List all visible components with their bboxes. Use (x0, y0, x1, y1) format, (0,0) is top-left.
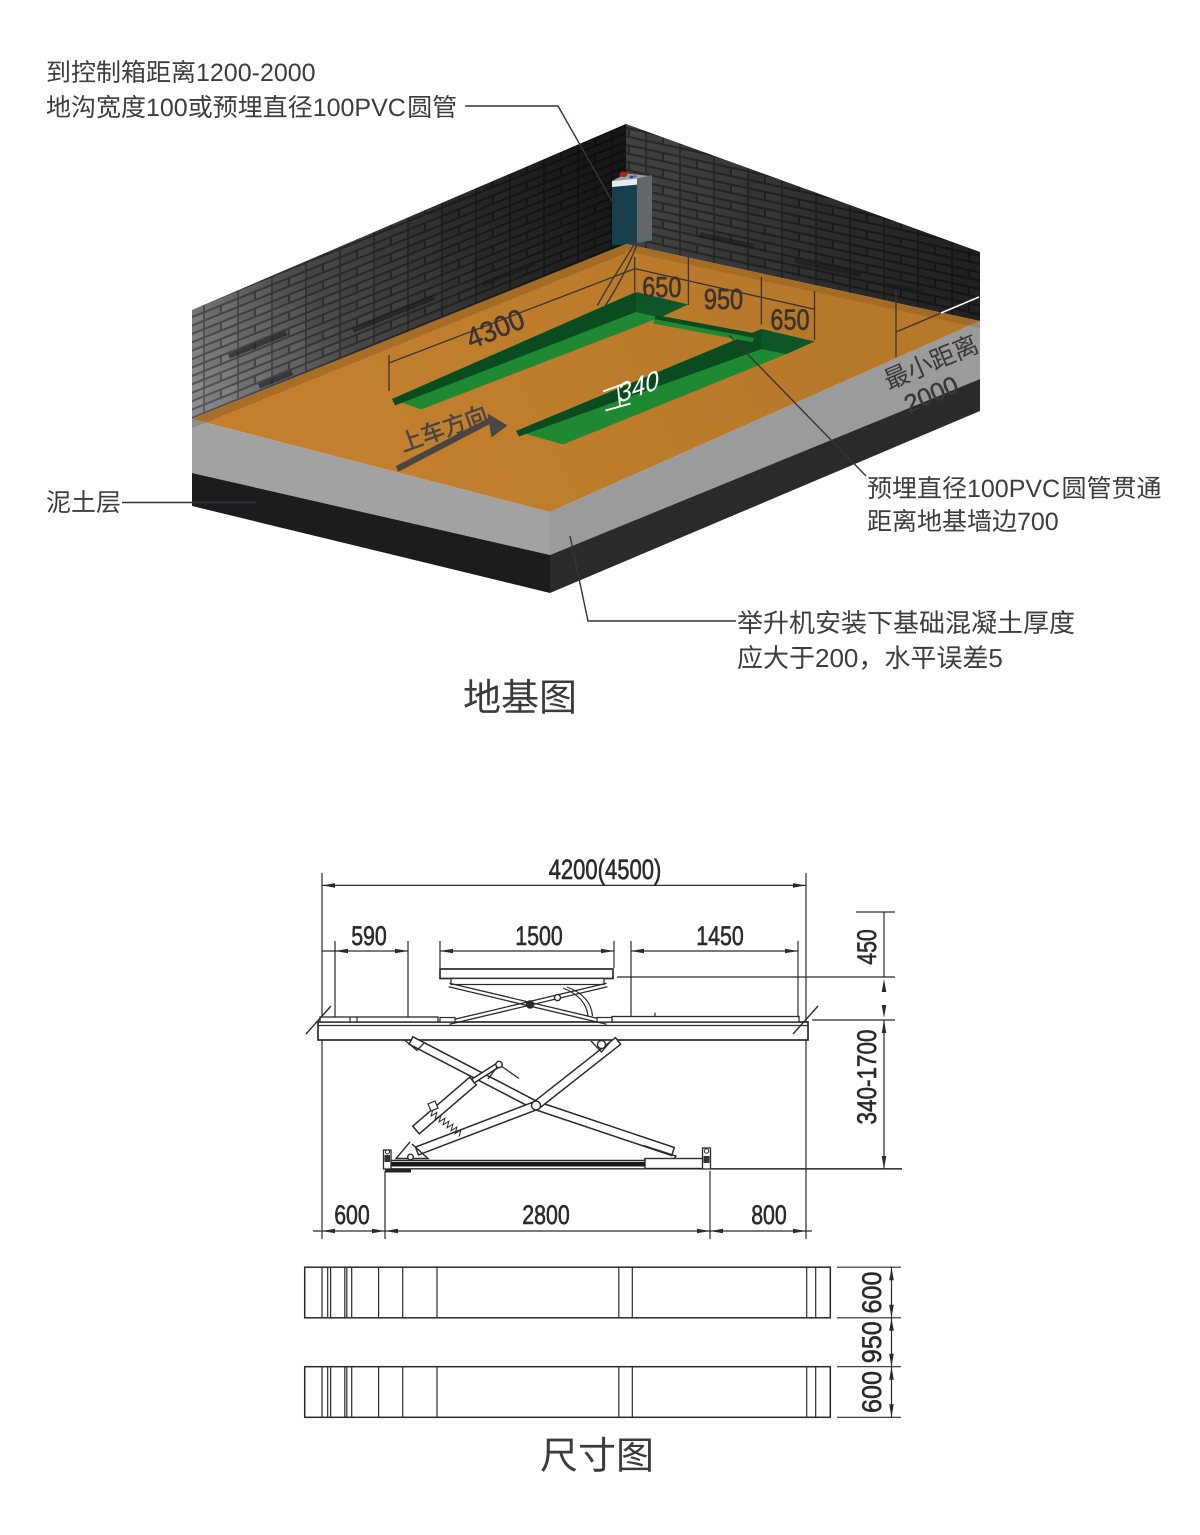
svg-text:650: 650 (642, 272, 681, 304)
svg-text:600: 600 (334, 1200, 370, 1230)
svg-text:340-1700: 340-1700 (852, 1030, 882, 1125)
svg-text:600: 600 (857, 1272, 887, 1314)
svg-text:600: 600 (857, 1371, 887, 1413)
svg-text:100PVC: 100PVC (967, 475, 1060, 503)
svg-text:590: 590 (351, 921, 387, 951)
svg-text:800: 800 (751, 1200, 787, 1230)
svg-text:2800: 2800 (522, 1200, 570, 1230)
svg-text:1200-2000: 1200-2000 (196, 59, 316, 87)
svg-text:1450: 1450 (696, 921, 744, 951)
svg-text:200: 200 (815, 643, 858, 673)
svg-text:650: 650 (770, 305, 809, 337)
svg-text:700: 700 (1017, 508, 1059, 536)
svg-text:1500: 1500 (515, 921, 563, 951)
svg-text:100PVC: 100PVC (313, 94, 406, 122)
svg-text:100: 100 (146, 94, 188, 122)
svg-text:5: 5 (988, 643, 1002, 673)
svg-text:4200(4500): 4200(4500) (549, 854, 662, 885)
svg-text:950: 950 (857, 1321, 887, 1363)
svg-text:450: 450 (852, 929, 882, 965)
svg-text:950: 950 (704, 284, 743, 316)
